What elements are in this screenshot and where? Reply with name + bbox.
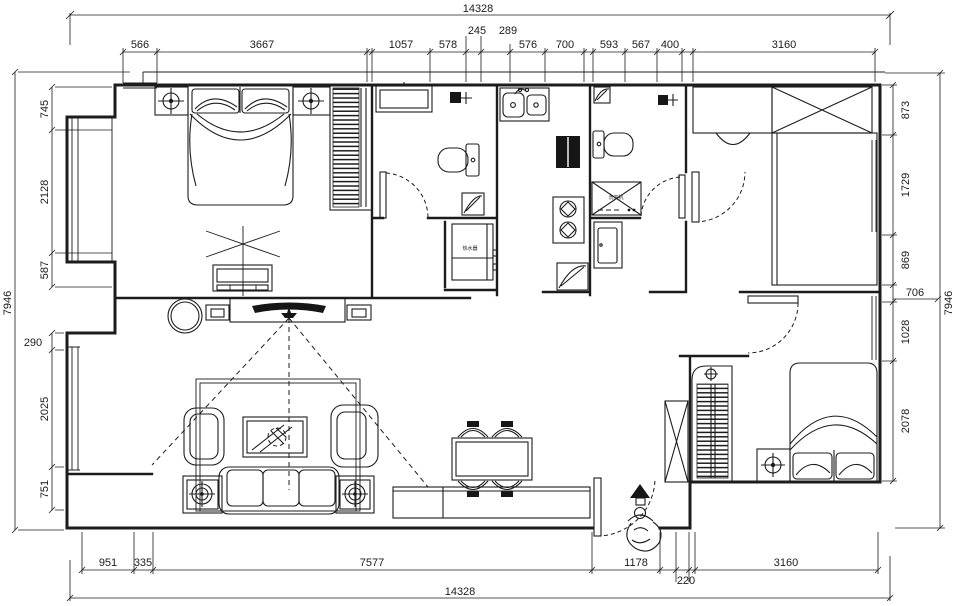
double-bed <box>188 87 293 205</box>
ceiling-lamp-icon <box>761 453 785 477</box>
dining-chair <box>492 421 522 437</box>
dim-left-587: 587 <box>39 261 51 279</box>
dim-top-289: 289 <box>499 25 517 37</box>
dim-top-1057: 1057 <box>389 39 413 51</box>
dining-chair <box>492 481 522 497</box>
dim-top-3160: 3160 <box>772 39 796 51</box>
refrigerator <box>556 136 580 168</box>
floor-plan-drawing: 14328 566 3667 1057 578 245 289 576 700 … <box>0 0 975 606</box>
entry-symbol <box>627 484 661 551</box>
dim-top-400: 400 <box>661 39 679 51</box>
dim-left-745: 745 <box>39 100 51 118</box>
dim-left-751: 751 <box>39 480 51 498</box>
dim-top-3667: 3667 <box>250 39 274 51</box>
dim-right-869: 869 <box>900 251 912 269</box>
speaker <box>206 305 229 320</box>
dim-top-578: 578 <box>439 39 457 51</box>
dim-top-567: 567 <box>632 39 650 51</box>
dim-bottom-220: 220 <box>677 575 695 587</box>
dim-left-2025: 2025 <box>39 397 51 421</box>
dim-right-overall: 7946 <box>943 291 955 315</box>
dim-right-706: 706 <box>906 287 924 299</box>
plant-pot <box>168 299 202 333</box>
speaker <box>347 305 371 320</box>
single-bed <box>772 133 877 285</box>
dim-top-593: 593 <box>600 39 618 51</box>
wall-basin-icon <box>450 92 472 104</box>
armchair <box>184 408 224 465</box>
closet-door-arc <box>716 133 750 145</box>
ceiling-lamp-icon <box>158 88 184 114</box>
wardrobe-crossed <box>772 87 872 133</box>
person-icon <box>627 508 661 552</box>
toilet <box>593 131 633 158</box>
dimension-annotations: 14328 566 3667 1057 578 245 289 576 700 … <box>2 3 955 601</box>
entry-arrow-icon <box>630 484 650 498</box>
corner-shelf-icon <box>557 263 588 290</box>
wardrobe <box>330 85 372 210</box>
dim-bottom-7577: 7577 <box>360 557 384 569</box>
dim-right-1028: 1028 <box>900 320 912 344</box>
double-bed <box>790 363 877 482</box>
dim-bottom-overall: 14328 <box>445 586 476 598</box>
floor-plan-canvas: 14328 566 3667 1057 578 245 289 576 700 … <box>0 0 975 606</box>
dim-top-576: 576 <box>519 39 537 51</box>
room-bedroom-top-right <box>693 87 877 285</box>
armchair <box>331 405 378 467</box>
room-living <box>152 298 428 514</box>
low-cabinet <box>393 487 590 518</box>
water-heater-label: 热水器 <box>462 245 477 252</box>
room-bathroom-2: 洗衣机 <box>592 87 678 268</box>
closet <box>693 87 772 133</box>
sliding-wardrobe <box>692 366 732 482</box>
bathroom1-door <box>380 172 428 218</box>
dresser-with-mirror <box>206 226 280 296</box>
room-bedroom-bottom-right <box>665 363 877 482</box>
washing-machine: 洗衣机 <box>592 182 641 215</box>
dim-right-1729: 1729 <box>900 173 912 197</box>
dim-top-245: 245 <box>468 25 486 37</box>
dining-table <box>452 438 532 480</box>
dim-top-overall: 14328 <box>463 3 494 15</box>
bathroom1-window <box>376 82 432 112</box>
tv-sight-lines <box>152 307 428 490</box>
side-table-lamp <box>183 476 222 513</box>
dim-bottom-1178: 1178 <box>624 557 648 569</box>
bedroom-bottom-right-door <box>748 296 798 353</box>
dining-chair <box>458 481 488 497</box>
room-kitchen <box>500 88 588 290</box>
entry-door <box>594 478 655 536</box>
water-heater-cabinet: 热水器 <box>452 224 497 280</box>
room-bathroom-1 <box>438 92 484 215</box>
dim-right-873: 873 <box>900 101 912 119</box>
dim-left-overall: 7946 <box>2 291 14 315</box>
corner-shower-drain-icon <box>462 193 484 215</box>
room-master-bedroom <box>155 85 372 296</box>
ceiling-lamp-icon <box>298 88 324 114</box>
hall-cabinet <box>594 222 622 268</box>
coffee-table <box>243 417 307 457</box>
room-dining <box>393 421 590 518</box>
crossed-cabinet <box>665 401 688 482</box>
tv-cabinet <box>230 298 345 322</box>
dim-top-700: 700 <box>556 39 574 51</box>
dim-bottom-335: 335 <box>134 557 152 569</box>
sofa <box>219 467 339 514</box>
bedroom-top-right-door <box>692 172 745 222</box>
dim-top-566: 566 <box>131 39 149 51</box>
gas-stove <box>553 197 584 243</box>
dining-chair <box>458 421 488 437</box>
corner-shelf-icon <box>594 87 610 103</box>
kitchen-sink <box>500 88 549 121</box>
toilet <box>438 144 479 176</box>
side-table-lamp <box>336 476 374 513</box>
dim-bottom-3160: 3160 <box>774 557 798 569</box>
dim-left-290: 290 <box>24 337 42 349</box>
dim-right-2078: 2078 <box>900 409 912 433</box>
bathroom2-door <box>641 175 685 218</box>
dim-bottom-951: 951 <box>99 557 117 569</box>
dim-left-2128: 2128 <box>39 180 51 204</box>
wall-basin-icon <box>658 94 678 106</box>
